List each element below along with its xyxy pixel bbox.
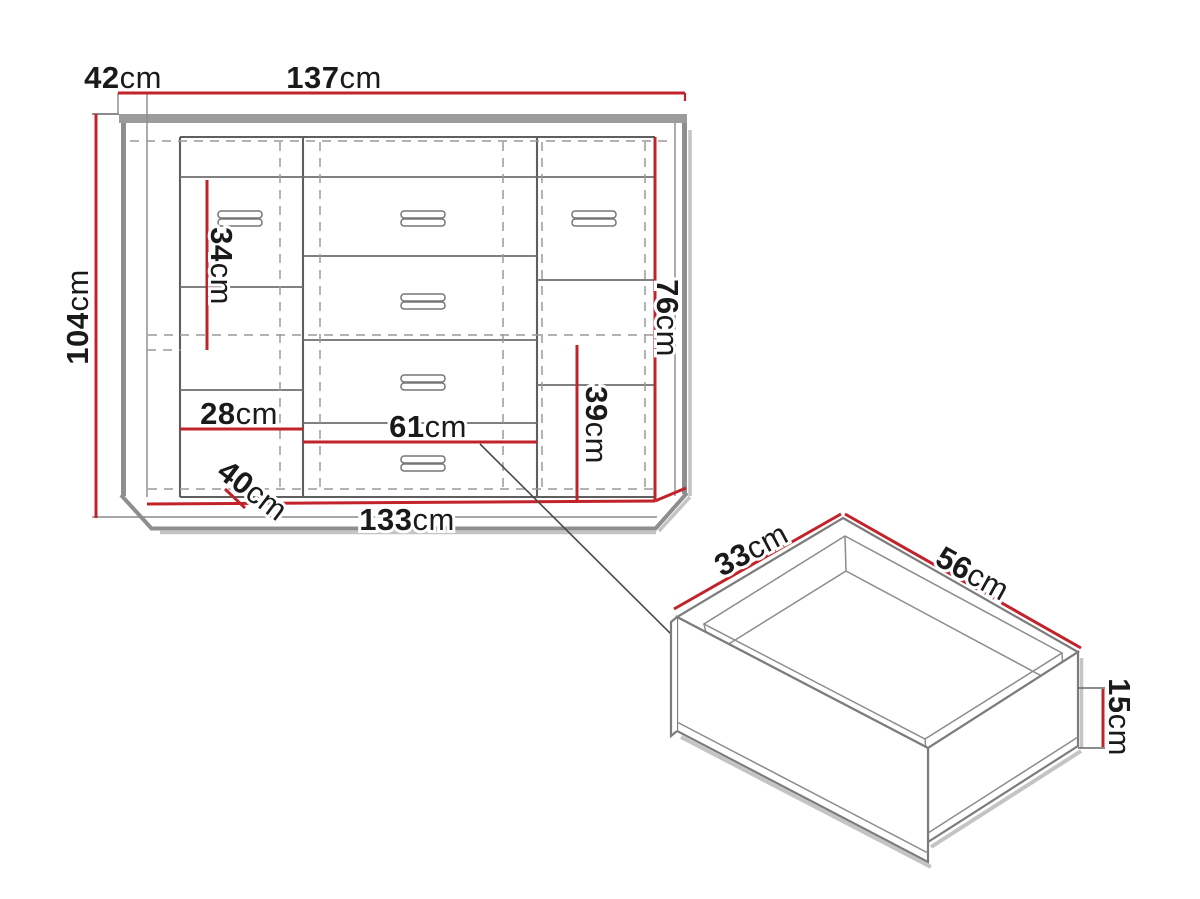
drawer-handle-1 xyxy=(401,219,445,226)
left-door-handle xyxy=(218,219,262,226)
diagram-canvas: 42cm 137cm 104cm 34cm 28cm 40cm 61cm 39c… xyxy=(0,0,1200,899)
drawer-handle-2 xyxy=(401,302,445,309)
height-overall-label: 104cm xyxy=(60,269,95,365)
drawer-handle-1 xyxy=(401,211,445,218)
drawer-inner-corner-back xyxy=(845,536,846,571)
drawer-handle-4 xyxy=(401,464,445,471)
left-shelf-height-label: 34cm xyxy=(205,227,240,305)
right-door-handle xyxy=(572,219,616,226)
drawer-front-edge-step xyxy=(671,617,677,736)
drawer-handle-3 xyxy=(401,383,445,390)
drawer-height-label: 15cm xyxy=(1103,678,1138,756)
drawer-handle-3 xyxy=(401,375,445,382)
center-section-width-label: 61cm xyxy=(389,409,467,444)
furniture-dimension-diagram: 42cm 137cm 104cm 34cm 28cm 40cm 61cm 39c… xyxy=(0,0,1200,899)
left-section-width-label: 28cm xyxy=(200,396,278,431)
drawer-handle-4 xyxy=(401,456,445,463)
right-door-height-label: 76cm xyxy=(651,279,686,357)
depth-top-label: 42cm xyxy=(84,60,162,95)
width-overall-label: 137cm xyxy=(286,60,382,95)
cabinet-top-board xyxy=(119,114,687,123)
right-shelf-height-label: 39cm xyxy=(580,386,615,464)
right-door-handle xyxy=(572,211,616,218)
width-base-label: 133cm xyxy=(359,502,455,537)
left-door-handle xyxy=(218,211,262,218)
drawer-handle-2 xyxy=(401,294,445,301)
